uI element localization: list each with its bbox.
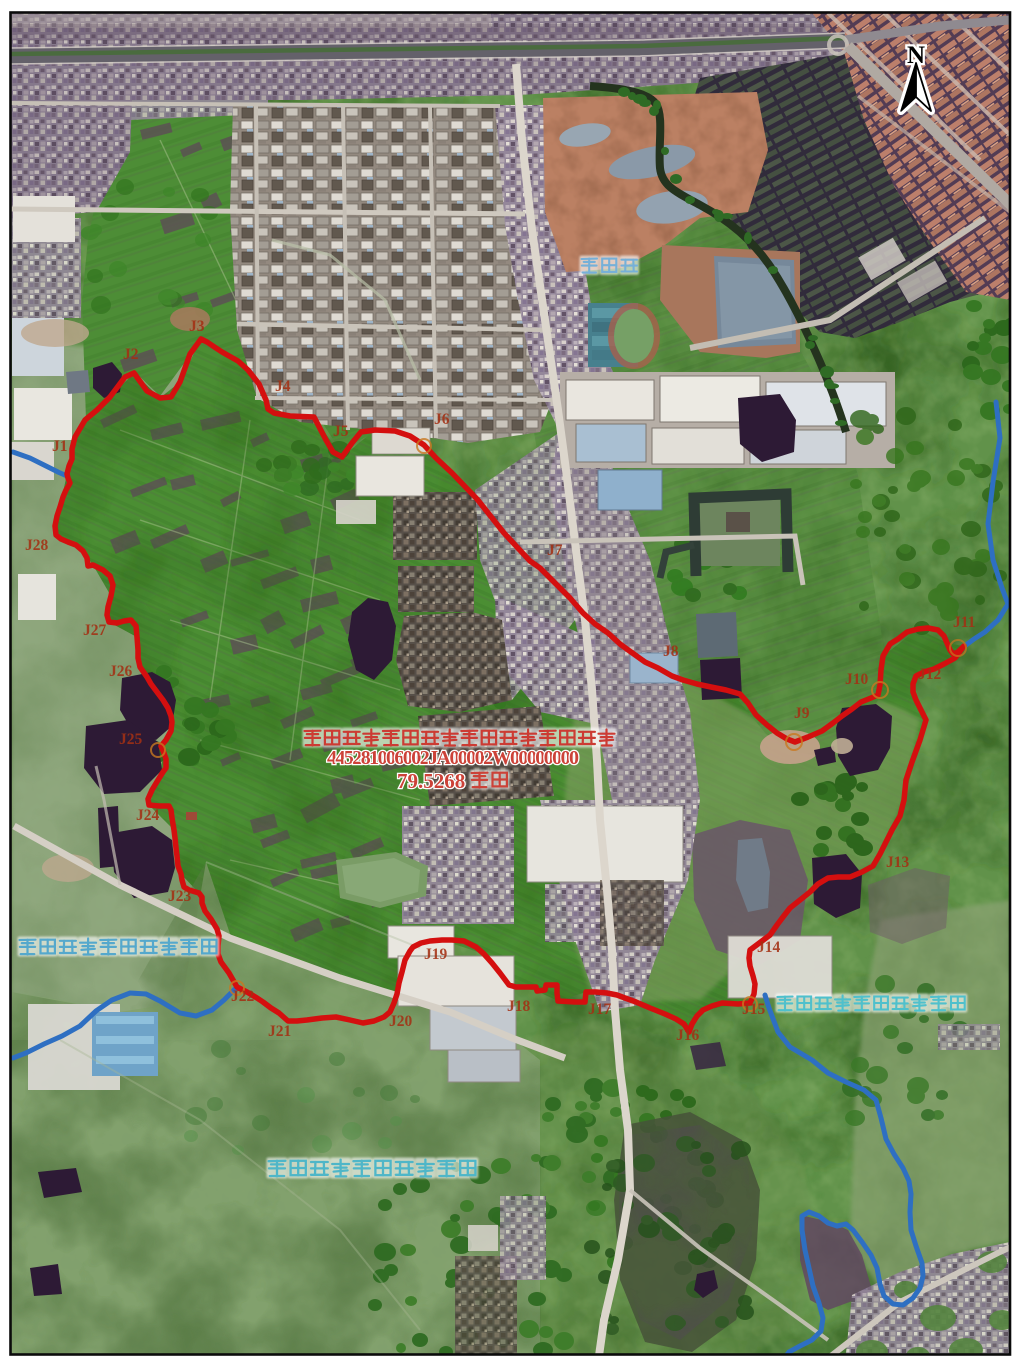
svg-text:J19: J19 bbox=[424, 946, 448, 963]
svg-text:J7: J7 bbox=[547, 542, 563, 559]
svg-text:J12: J12 bbox=[918, 666, 942, 683]
svg-text:J25: J25 bbox=[119, 731, 143, 748]
svg-text:J3: J3 bbox=[189, 318, 205, 335]
svg-text:J2: J2 bbox=[123, 346, 139, 363]
svg-text:J16: J16 bbox=[676, 1027, 700, 1044]
svg-text:J26: J26 bbox=[109, 663, 133, 680]
svg-text:J27: J27 bbox=[83, 622, 107, 639]
svg-text:445281006002JA00002W00000000: 445281006002JA00002W00000000 bbox=[327, 747, 579, 769]
svg-text:J22: J22 bbox=[231, 988, 255, 1005]
svg-text:J1: J1 bbox=[52, 438, 68, 455]
svg-text:J18: J18 bbox=[507, 998, 531, 1015]
svg-text:J28: J28 bbox=[25, 537, 49, 554]
svg-text:J6: J6 bbox=[434, 411, 450, 428]
svg-text:J23: J23 bbox=[168, 888, 192, 905]
svg-text:J13: J13 bbox=[886, 854, 910, 871]
svg-text:J14: J14 bbox=[757, 939, 781, 956]
svg-text:J9: J9 bbox=[794, 705, 810, 722]
svg-text:J10: J10 bbox=[845, 671, 869, 688]
svg-text:J17: J17 bbox=[588, 1001, 612, 1018]
svg-text:J24: J24 bbox=[136, 807, 160, 824]
svg-text:J4: J4 bbox=[275, 378, 291, 395]
svg-text:J11: J11 bbox=[953, 614, 975, 631]
svg-text:J20: J20 bbox=[389, 1013, 413, 1030]
svg-text:J5: J5 bbox=[333, 423, 349, 440]
svg-text:J21: J21 bbox=[268, 1023, 291, 1040]
svg-text:J8: J8 bbox=[663, 643, 679, 660]
svg-text:J15: J15 bbox=[742, 1001, 766, 1018]
svg-text:79.5268: 79.5268 bbox=[397, 769, 465, 793]
